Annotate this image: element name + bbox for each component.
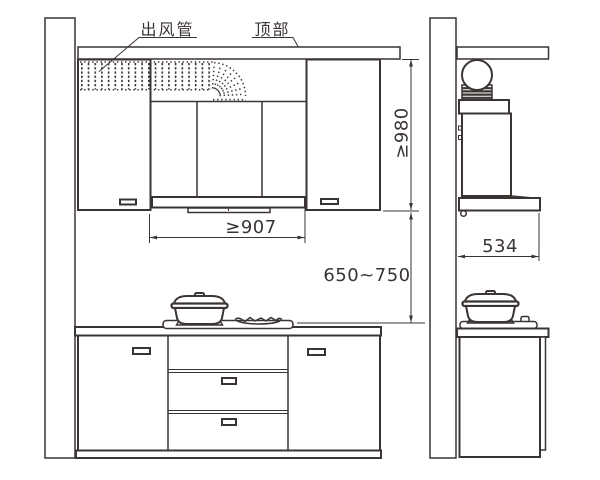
installation-diagram: ≥907 ≥980 650~750 534 出风管 顶部 [0, 0, 600, 480]
label-ceiling: 顶部 [252, 20, 298, 47]
left-brick-wall [45, 18, 75, 458]
base-cabinet-side [460, 337, 546, 457]
dim-hood-width-text: ≥907 [225, 217, 276, 238]
cabinet-handle [120, 200, 136, 205]
hood-chimney-side [462, 114, 511, 197]
duct-elbow-fan [213, 63, 247, 100]
base-cabinet-front [76, 336, 381, 459]
countertop-side [457, 329, 549, 338]
cabinet-handle [133, 348, 150, 354]
ceiling-strip-side [457, 47, 549, 59]
duct-label-text: 出风管 [140, 20, 194, 39]
chimney-cap-side [459, 100, 509, 114]
right-brick-wall [430, 18, 456, 458]
wall-cabinet-right [307, 60, 381, 211]
dim-wall-height: ≥980 [383, 60, 419, 212]
duct-hatch [80, 62, 215, 90]
hood-canopy-side [459, 198, 540, 211]
hood-chimney-front [197, 102, 262, 198]
drawer-handle [222, 419, 236, 425]
oil-cup [461, 211, 467, 217]
wall-bracket [459, 126, 462, 130]
plinth-front [76, 451, 381, 459]
range-hood-side [459, 60, 541, 216]
dim-hood-depth: 534 [458, 213, 539, 261]
dim-hood-clearance: 650~750 [297, 213, 425, 324]
pot-front [172, 293, 228, 325]
cabinet-handle [321, 199, 338, 204]
installation-diagram-page: ≥907 ≥980 650~750 534 出风管 顶部 [0, 0, 600, 480]
pot-side [463, 291, 519, 323]
cabinet-handle [308, 349, 325, 355]
duct-pipe-circle [462, 60, 492, 90]
drawer-handle [222, 378, 236, 384]
dim-wall-height-text: ≥980 [392, 107, 413, 158]
hood-body-front [152, 197, 305, 208]
dim-clearance-text: 650~750 [323, 265, 410, 286]
dim-depth-text: 534 [482, 236, 518, 257]
range-hood-front [151, 102, 307, 213]
ceiling-label-text: 顶部 [254, 20, 290, 39]
wall-bracket [459, 136, 462, 140]
